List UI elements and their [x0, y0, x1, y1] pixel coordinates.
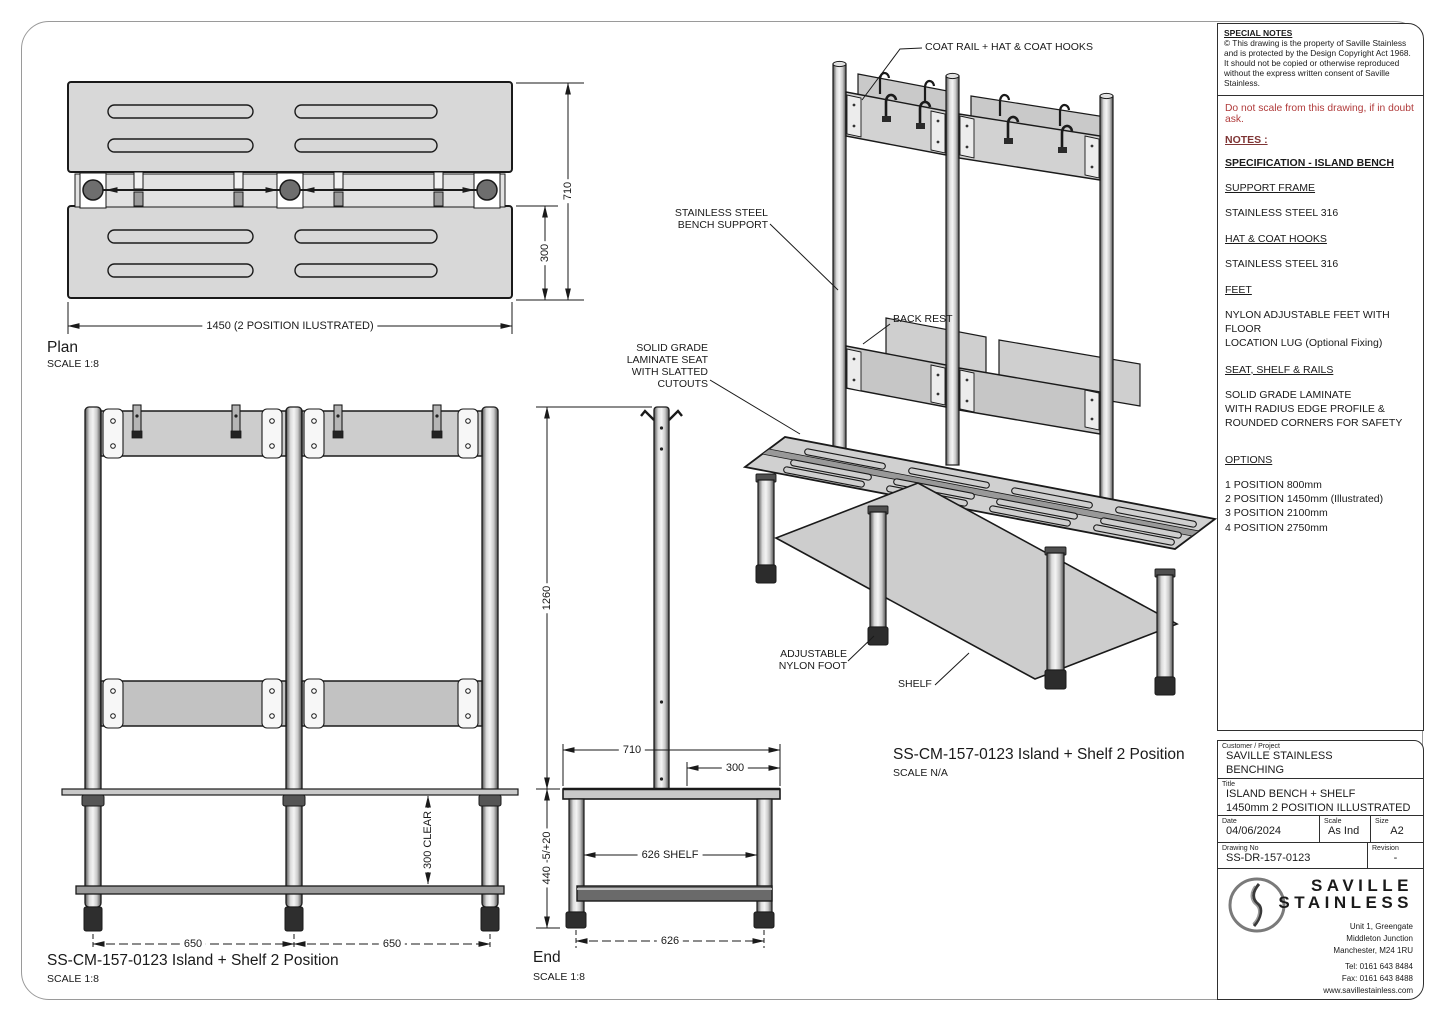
size-label: Size [1371, 816, 1423, 825]
plan-view-linework [68, 82, 584, 334]
front-view-title: SS-CM-157-0123 Island + Shelf 2 Position [47, 952, 339, 970]
plan-view-scale: SCALE 1:8 [47, 358, 99, 370]
end-view-title: End [533, 949, 561, 967]
specification-heading: SPECIFICATION - ISLAND BENCH [1225, 157, 1416, 169]
section-heading-seat-shelf-rails: SEAT, SHELF & RAILS [1225, 364, 1416, 376]
end-dim-depth: 710 [619, 744, 645, 756]
customer-value-line2: BENCHING [1218, 764, 1423, 778]
special-notes-section: SPECIAL NOTES © This drawing is the prop… [1218, 24, 1423, 96]
company-address: Unit 1, Greengate Middleton Junction Man… [1333, 921, 1413, 957]
brand-name: SAVILLE STAINLESS [1278, 877, 1413, 911]
special-notes-heading: SPECIAL NOTES [1224, 28, 1417, 38]
drawing-no-label: Drawing No [1218, 843, 1367, 852]
end-dim-seat: 300 [722, 762, 748, 774]
iso-view-scale: SCALE N/A [893, 767, 948, 779]
iso-label-back-rest: BACK REST [893, 313, 953, 325]
iso-label-bench-support: STAINLESS STEEL BENCH SUPPORT [658, 207, 768, 231]
section-body-hooks: STAINLESS STEEL 316 [1225, 257, 1416, 271]
plan-dim-seat: 300 [539, 241, 551, 265]
plan-dim-width: 1450 (2 POSITION ILUSTRATED) [202, 320, 377, 332]
section-heading-support-frame: SUPPORT FRAME [1225, 182, 1416, 194]
brand-line2: STAINLESS [1278, 894, 1413, 911]
notes-panel: SPECIAL NOTES © This drawing is the prop… [1217, 23, 1424, 731]
date-value: 04/06/2024 [1218, 825, 1319, 839]
front-dim-bay-left: 650 [180, 938, 206, 950]
notes-heading: NOTES : [1225, 134, 1416, 146]
address-line2: Middleton Junction [1333, 933, 1413, 945]
title-label: Title [1218, 779, 1423, 788]
section-body-options: 1 POSITION 800mm 2 POSITION 1450mm (Illu… [1225, 478, 1416, 535]
end-view-scale: SCALE 1:8 [533, 971, 585, 983]
iso-view-linework [710, 48, 1215, 695]
end-dim-shelf: 626 SHELF [638, 849, 703, 861]
address-line3: Manchester, M24 1RU [1333, 945, 1413, 957]
drawing-sheet: Plan SCALE 1:8 1450 (2 POSITION ILUSTRAT… [0, 0, 1445, 1022]
iso-label-coat-rail: COAT RAIL + HAT & COAT HOOKS [925, 41, 1093, 53]
iso-label-seat: SOLID GRADE LAMINATE SEAT WITH SLATTED C… [584, 342, 708, 390]
end-dim-width: 626 [657, 935, 683, 947]
scale-value: As Ind [1320, 825, 1370, 839]
revision-value: - [1368, 852, 1423, 866]
iso-label-shelf: SHELF [898, 678, 932, 690]
size-value: A2 [1371, 825, 1423, 839]
front-view-scale: SCALE 1:8 [47, 973, 99, 985]
revision-label: Revision [1368, 843, 1423, 852]
title-value-line2: 1450mm 2 POSITION ILLUSTRATED [1218, 802, 1423, 816]
drawing-no-row: Drawing No SS-DR-157-0123 Revision - [1218, 843, 1423, 869]
customer-label: Customer / Project [1218, 741, 1423, 750]
company-contacts: Tel: 0161 643 8484 Fax: 0161 643 8488 ww… [1323, 961, 1413, 997]
plan-view-title: Plan [47, 339, 78, 357]
end-dim-above-seat: 1260 [541, 583, 553, 613]
section-heading-options: OPTIONS [1225, 454, 1416, 466]
plan-dim-depth: 710 [562, 179, 574, 203]
iso-view-title: SS-CM-157-0123 Island + Shelf 2 Position [893, 746, 1185, 764]
brand-line1: SAVILLE [1278, 877, 1413, 894]
title-block: Customer / Project SAVILLE STAINLESS BEN… [1217, 740, 1424, 1000]
website-value: www.savillestainless.com [1323, 985, 1413, 997]
end-view-linework [536, 407, 780, 948]
front-view-linework [62, 405, 518, 950]
address-line1: Unit 1, Greengate [1333, 921, 1413, 933]
do-not-scale-warning: Do not scale from this drawing, if in do… [1225, 103, 1416, 125]
drawing-no-value: SS-DR-157-0123 [1218, 852, 1367, 866]
customer-value-line1: SAVILLE STAINLESS [1218, 750, 1423, 764]
brand-zone: SAVILLE STAINLESS Unit 1, Greengate Midd… [1218, 869, 1423, 1000]
section-body-feet: NYLON ADJUSTABLE FEET WITH FLOOR LOCATIO… [1225, 308, 1416, 351]
date-scale-size-row: Date 04/06/2024 Scale As Ind Size A2 [1218, 816, 1423, 843]
tel-value: Tel: 0161 643 8484 [1323, 961, 1413, 973]
fax-value: Fax: 0161 643 8488 [1323, 973, 1413, 985]
front-dim-clear: 300 CLEAR [422, 808, 434, 872]
title-value-line1: ISLAND BENCH + SHELF [1218, 788, 1423, 802]
special-notes-body: © This drawing is the property of Savill… [1224, 39, 1417, 89]
front-dim-bay-right: 650 [379, 938, 405, 950]
section-body-support-frame: STAINLESS STEEL 316 [1225, 206, 1416, 220]
section-heading-hooks: HAT & COAT HOOKS [1225, 233, 1416, 245]
title-row: Title ISLAND BENCH + SHELF 1450mm 2 POSI… [1218, 779, 1423, 816]
section-heading-feet: FEET [1225, 284, 1416, 296]
scale-label: Scale [1320, 816, 1370, 825]
end-dim-seat-height: 440 -5/+20 [541, 829, 553, 888]
customer-row: Customer / Project SAVILLE STAINLESS BEN… [1218, 741, 1423, 779]
date-label: Date [1218, 816, 1319, 825]
iso-label-foot: ADJUSTABLE NYLON FOOT [772, 648, 847, 672]
section-body-seat-shelf-rails: SOLID GRADE LAMINATE WITH RADIUS EDGE PR… [1225, 388, 1416, 431]
